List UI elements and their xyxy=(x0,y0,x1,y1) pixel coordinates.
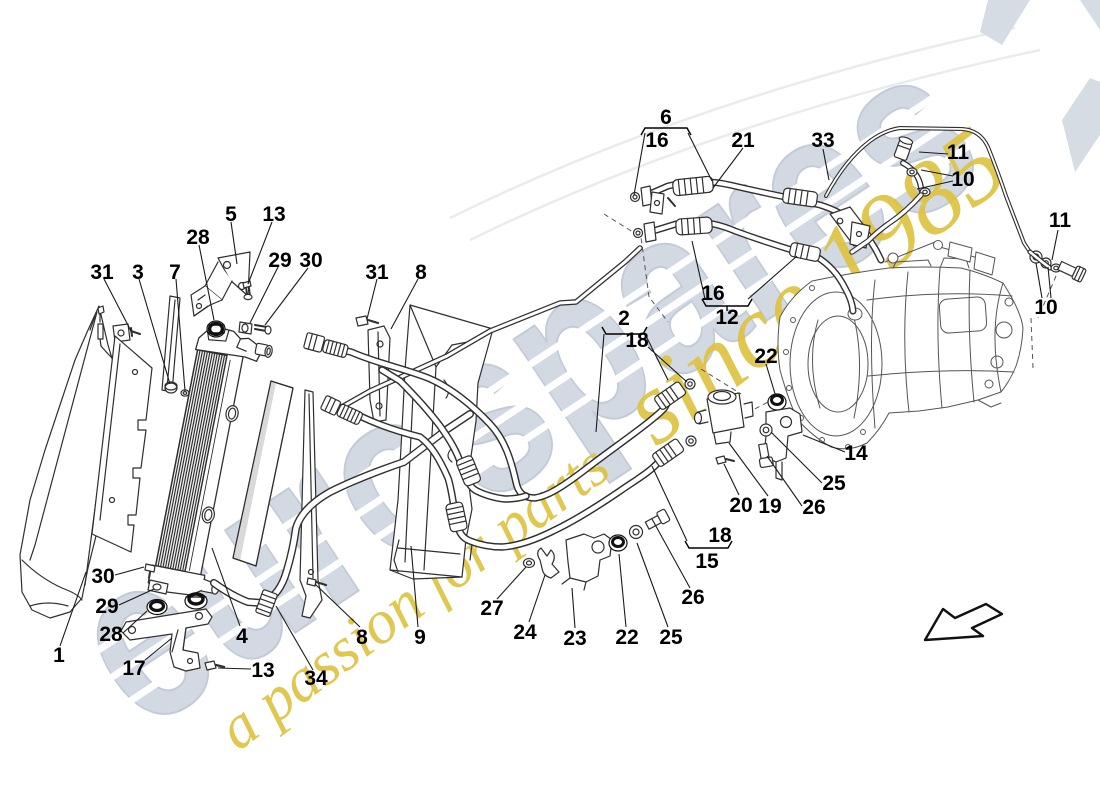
svg-text:13: 13 xyxy=(262,203,285,226)
svg-text:10: 10 xyxy=(951,168,974,191)
svg-text:33: 33 xyxy=(811,129,834,152)
svg-text:4: 4 xyxy=(236,625,248,648)
svg-text:34: 34 xyxy=(304,667,328,690)
svg-text:11: 11 xyxy=(1049,209,1072,232)
svg-text:2: 2 xyxy=(618,307,630,330)
svg-text:17: 17 xyxy=(122,657,145,680)
svg-text:28: 28 xyxy=(186,226,210,249)
svg-text:3: 3 xyxy=(132,261,144,284)
svg-text:23: 23 xyxy=(563,627,586,650)
svg-text:9: 9 xyxy=(414,626,426,649)
svg-text:15: 15 xyxy=(695,550,719,573)
svg-text:30: 30 xyxy=(91,565,114,588)
svg-text:11: 11 xyxy=(947,141,970,164)
svg-text:30: 30 xyxy=(299,249,322,272)
svg-text:22: 22 xyxy=(754,345,777,368)
svg-text:28: 28 xyxy=(99,623,123,646)
svg-text:8: 8 xyxy=(415,261,427,284)
svg-text:21: 21 xyxy=(731,129,755,152)
svg-text:24: 24 xyxy=(513,621,537,644)
svg-text:8: 8 xyxy=(356,626,368,649)
svg-text:25: 25 xyxy=(822,472,846,495)
svg-text:31: 31 xyxy=(365,261,389,284)
svg-text:14: 14 xyxy=(844,442,868,465)
svg-text:1: 1 xyxy=(53,644,65,667)
svg-text:6: 6 xyxy=(660,106,672,129)
svg-text:7: 7 xyxy=(169,261,181,284)
svg-text:27: 27 xyxy=(480,597,503,620)
svg-text:13: 13 xyxy=(251,659,274,682)
svg-text:19: 19 xyxy=(758,495,781,518)
svg-text:20: 20 xyxy=(729,494,752,517)
svg-text:22: 22 xyxy=(615,626,638,649)
svg-text:18: 18 xyxy=(708,524,732,547)
svg-text:29: 29 xyxy=(95,595,118,618)
svg-text:16: 16 xyxy=(701,282,724,305)
svg-text:31: 31 xyxy=(90,261,114,284)
svg-text:10: 10 xyxy=(1034,296,1057,319)
svg-text:18: 18 xyxy=(625,329,649,352)
svg-text:29: 29 xyxy=(268,249,291,272)
svg-text:12: 12 xyxy=(715,306,738,329)
svg-text:16: 16 xyxy=(645,129,668,152)
svg-text:5: 5 xyxy=(225,203,237,226)
svg-text:25: 25 xyxy=(659,626,683,649)
svg-text:26: 26 xyxy=(681,586,704,609)
svg-text:26: 26 xyxy=(802,496,825,519)
